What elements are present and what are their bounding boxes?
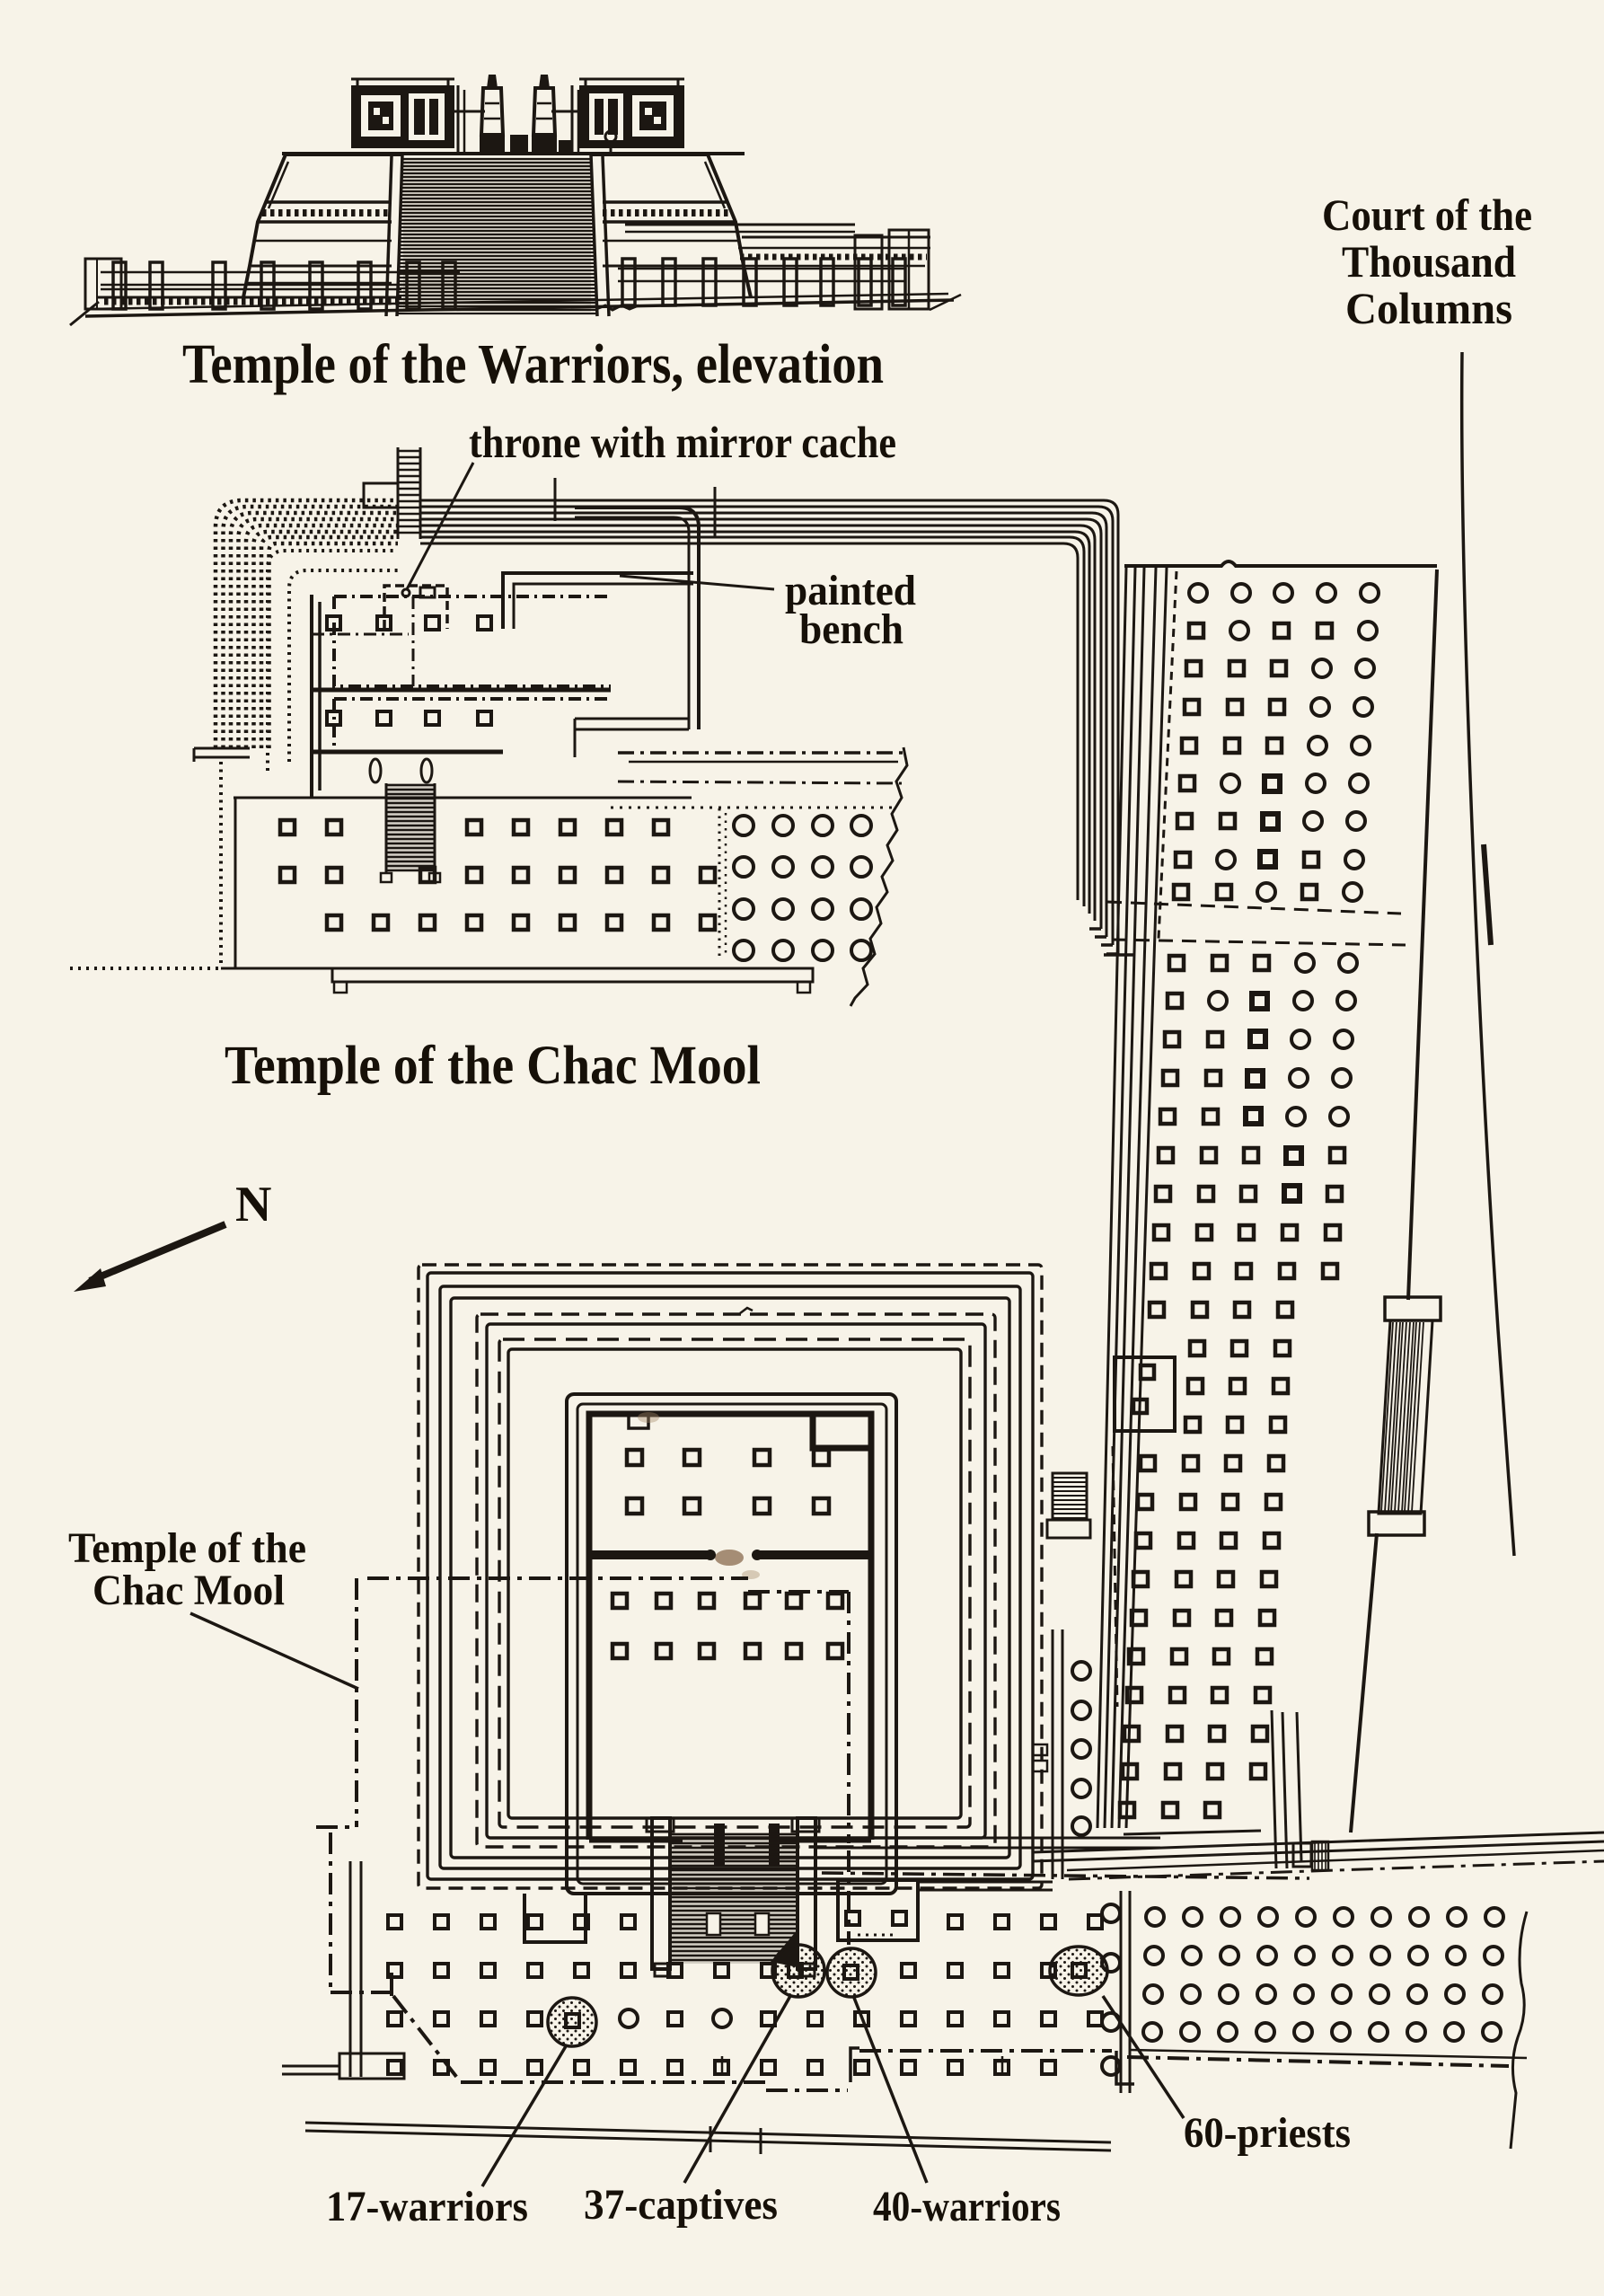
svg-text:N: N — [235, 1177, 271, 1232]
svg-text:Temple of the Chac Mool: Temple of the Chac Mool — [225, 1036, 761, 1096]
svg-text:40-warriors: 40-warriors — [873, 2183, 1061, 2230]
svg-text:17-warriors: 17-warriors — [326, 2183, 528, 2230]
svg-text:Temple of the Warriors, elevat: Temple of the Warriors, elevation — [182, 334, 884, 395]
svg-text:Columns: Columns — [1345, 283, 1512, 333]
svg-text:Chac Mool: Chac Mool — [93, 1567, 285, 1614]
svg-text:37-captives: 37-captives — [584, 2181, 778, 2229]
svg-text:bench: bench — [799, 605, 903, 653]
svg-text:Court of the: Court of the — [1322, 190, 1532, 240]
svg-text:Thousand: Thousand — [1342, 236, 1516, 287]
svg-text:Temple of the: Temple of the — [68, 1524, 306, 1572]
svg-text:throne with mirror cache: throne with mirror cache — [469, 417, 896, 467]
svg-text:60-priests: 60-priests — [1184, 2109, 1351, 2157]
